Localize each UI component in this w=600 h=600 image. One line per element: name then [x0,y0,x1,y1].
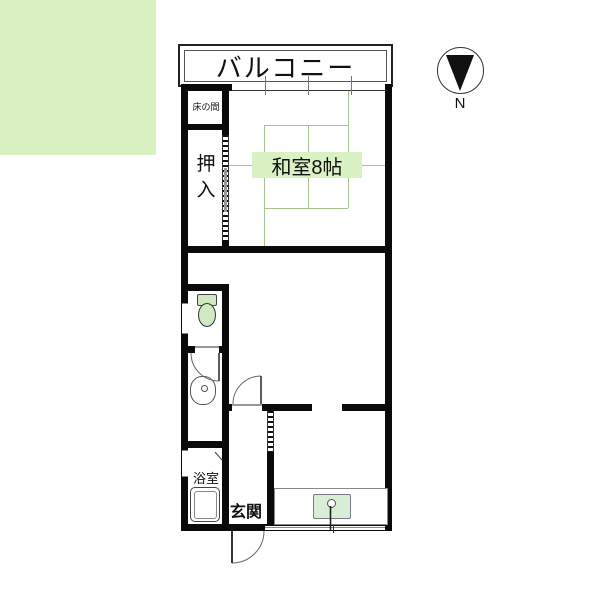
floor-plan: バルコニー N 和室8帖 [0,0,600,600]
bath-door-mark [215,452,222,460]
north-wedge-icon [446,55,474,91]
plan-overlay [0,0,600,600]
toilet-door-arc [191,353,219,381]
living-door-arc [233,376,261,404]
entrance-door-arc [232,531,264,563]
